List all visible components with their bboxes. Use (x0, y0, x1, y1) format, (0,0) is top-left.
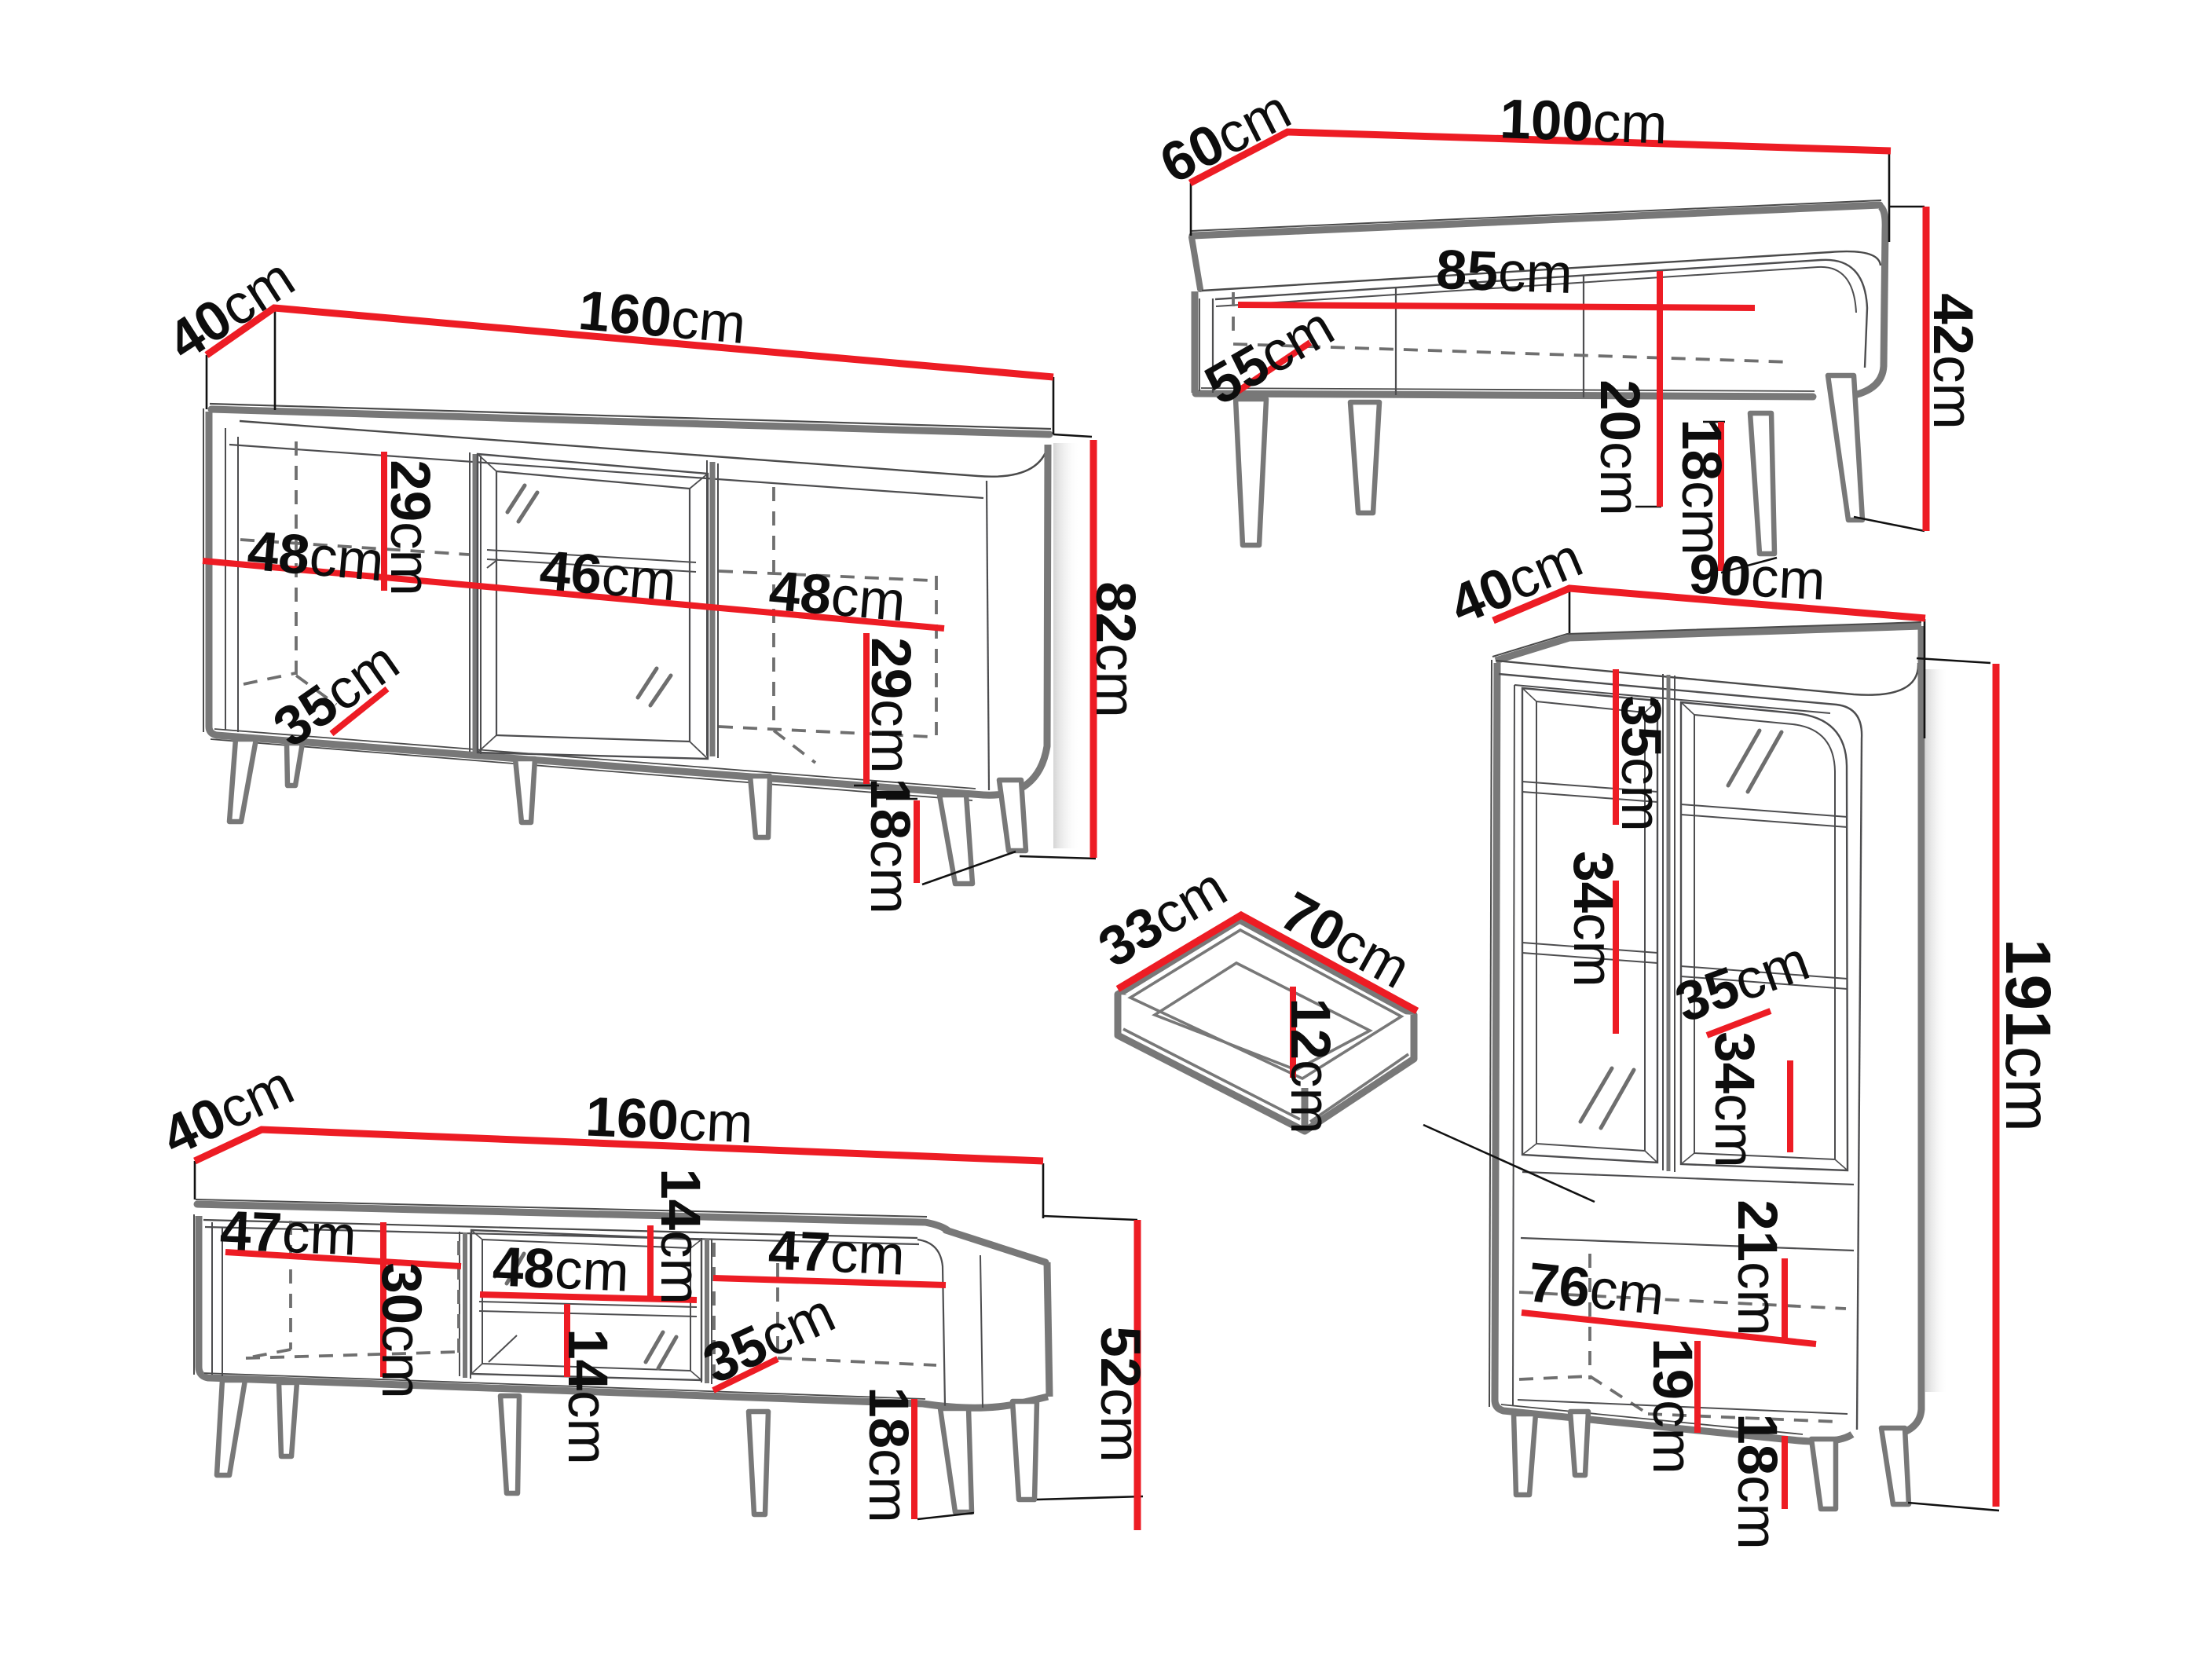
svg-text:18cm: 18cm (859, 778, 921, 914)
svg-text:52cm: 52cm (1090, 1326, 1152, 1463)
svg-text:29cm: 29cm (860, 637, 922, 774)
svg-text:29cm: 29cm (379, 460, 441, 596)
svg-text:46cm: 46cm (537, 539, 679, 613)
svg-text:100cm: 100cm (1499, 88, 1668, 156)
svg-text:14cm: 14cm (557, 1328, 619, 1465)
svg-text:35cm: 35cm (1610, 695, 1672, 832)
svg-text:30cm: 30cm (371, 1262, 433, 1399)
svg-text:12cm: 12cm (1280, 998, 1342, 1134)
svg-text:90cm: 90cm (1687, 543, 1827, 612)
svg-text:18cm: 18cm (1671, 419, 1733, 555)
svg-text:34cm: 34cm (1562, 851, 1624, 987)
svg-text:18cm: 18cm (858, 1386, 920, 1523)
svg-text:47cm: 47cm (767, 1219, 906, 1287)
svg-text:48cm: 48cm (767, 559, 908, 633)
svg-text:20cm: 20cm (1589, 379, 1651, 516)
svg-text:48cm: 48cm (492, 1236, 631, 1303)
svg-text:42cm: 42cm (1922, 293, 1984, 430)
svg-text:48cm: 48cm (245, 519, 386, 593)
svg-text:82cm: 82cm (1085, 581, 1147, 718)
svg-text:19cm: 19cm (1642, 1338, 1704, 1474)
svg-text:21cm: 21cm (1727, 1199, 1789, 1336)
svg-text:47cm: 47cm (219, 1199, 358, 1267)
svg-text:160cm: 160cm (584, 1086, 754, 1155)
svg-text:18cm: 18cm (1727, 1413, 1789, 1550)
svg-text:34cm: 34cm (1704, 1031, 1766, 1168)
svg-text:85cm: 85cm (1435, 238, 1573, 305)
svg-text:14cm: 14cm (650, 1168, 712, 1305)
svg-text:191cm: 191cm (1993, 939, 2064, 1132)
